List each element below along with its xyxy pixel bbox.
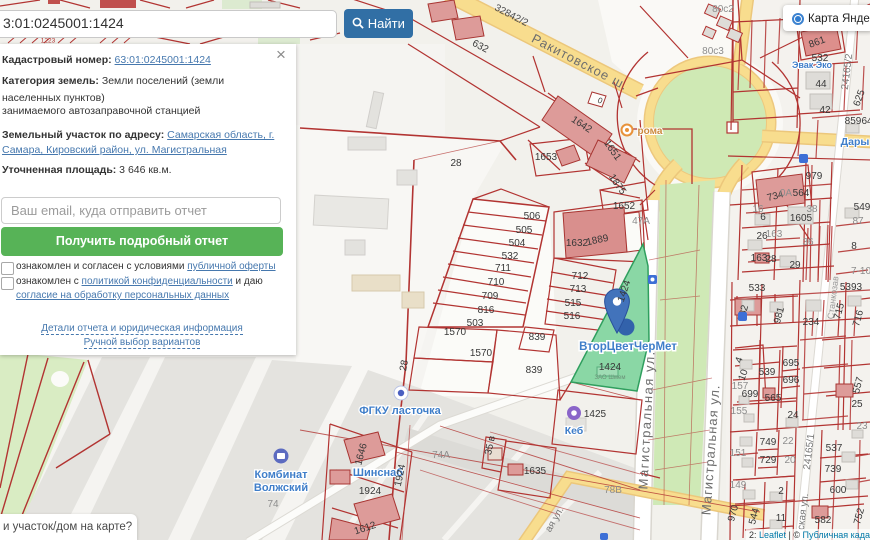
svg-text:163: 163 <box>766 229 783 240</box>
svg-text:87: 87 <box>852 216 864 227</box>
svg-text:29: 29 <box>789 260 801 271</box>
svg-text:149: 149 <box>730 480 747 491</box>
svg-text:699: 699 <box>742 389 759 400</box>
svg-text:74: 74 <box>267 499 279 510</box>
svg-text:1635: 1635 <box>524 466 547 477</box>
svg-text:711: 711 <box>495 263 511 274</box>
svg-text:816: 816 <box>478 305 495 316</box>
svg-text:549: 549 <box>854 202 870 213</box>
svg-text:696: 696 <box>783 375 800 386</box>
svg-text:1653: 1653 <box>535 152 558 163</box>
svg-text:729: 729 <box>760 455 777 466</box>
svg-text:Комбинат: Комбинат <box>255 469 309 481</box>
svg-text:506: 506 <box>524 211 541 222</box>
svg-text:ЗАО Шмем: ЗАО Шмем <box>595 375 626 381</box>
svg-text:1425: 1425 <box>584 409 607 420</box>
svg-text:6: 6 <box>760 212 766 223</box>
svg-text:ФГКУ ласточка: ФГКУ ласточка <box>359 405 441 417</box>
svg-text:36: 36 <box>802 237 814 248</box>
svg-text:695: 695 <box>783 358 800 369</box>
svg-text:1424: 1424 <box>599 362 622 373</box>
svg-text:20: 20 <box>784 455 796 466</box>
svg-text:565: 565 <box>765 393 782 404</box>
svg-text:78В: 78В <box>604 485 622 496</box>
svg-text:28: 28 <box>765 254 777 265</box>
svg-text:739: 739 <box>825 464 842 475</box>
svg-text:516: 516 <box>564 311 581 322</box>
svg-text:2: 2 <box>778 486 784 497</box>
svg-text:38: 38 <box>806 204 818 215</box>
svg-text:ВторЦветЧерМет: ВторЦветЧерМет <box>579 341 677 353</box>
svg-text:533: 533 <box>749 283 766 294</box>
svg-text:532: 532 <box>812 53 829 64</box>
svg-text:979: 979 <box>806 171 823 182</box>
svg-text:8: 8 <box>851 241 857 252</box>
svg-text:74А: 74А <box>432 450 450 461</box>
svg-text:151: 151 <box>730 448 747 459</box>
svg-text:22: 22 <box>782 436 794 447</box>
svg-text:839: 839 <box>529 332 546 343</box>
svg-text:47А: 47А <box>632 216 650 227</box>
svg-text:80с2: 80с2 <box>712 4 734 15</box>
svg-text:23: 23 <box>856 421 868 432</box>
svg-text:155: 155 <box>731 406 748 417</box>
svg-text:564: 564 <box>793 188 810 199</box>
svg-text:709: 709 <box>482 291 499 302</box>
svg-text:7-10: 7-10 <box>851 266 870 277</box>
svg-text:11: 11 <box>776 513 787 524</box>
svg-text:503: 503 <box>467 318 484 329</box>
svg-text:515: 515 <box>565 298 582 309</box>
svg-text:532: 532 <box>502 251 519 262</box>
svg-text:24: 24 <box>787 410 799 421</box>
svg-text:Дары: Дары <box>841 136 870 148</box>
svg-text:749: 749 <box>760 437 777 448</box>
svg-text:1570: 1570 <box>470 348 493 359</box>
svg-text:25: 25 <box>851 399 863 410</box>
svg-text:рома: рома <box>638 126 663 137</box>
svg-text:64: 64 <box>861 116 870 127</box>
svg-text:42: 42 <box>819 105 831 116</box>
svg-text:44: 44 <box>815 79 827 90</box>
svg-text:1652: 1652 <box>613 201 636 212</box>
svg-text:537: 537 <box>826 443 843 454</box>
svg-text:5393: 5393 <box>840 282 863 293</box>
svg-text:839: 839 <box>526 365 543 376</box>
svg-text:1924: 1924 <box>359 486 382 497</box>
svg-text:539: 539 <box>759 367 776 378</box>
svg-text:0А: 0А <box>780 188 793 199</box>
svg-text:Кеб: Кеб <box>565 425 584 437</box>
svg-text:582: 582 <box>815 515 832 526</box>
svg-text:234: 234 <box>803 317 820 328</box>
svg-text:504: 504 <box>509 238 526 249</box>
svg-text:710: 710 <box>488 277 505 288</box>
svg-text:Волжский: Волжский <box>254 482 308 494</box>
svg-text:505: 505 <box>516 225 533 236</box>
svg-text:600: 600 <box>830 485 847 496</box>
svg-text:712: 712 <box>572 271 589 282</box>
svg-text:80с3: 80с3 <box>702 46 724 57</box>
svg-text:713: 713 <box>570 284 587 295</box>
svg-text:859: 859 <box>845 116 862 127</box>
svg-text:1570: 1570 <box>444 327 467 338</box>
svg-text:28: 28 <box>450 158 462 169</box>
